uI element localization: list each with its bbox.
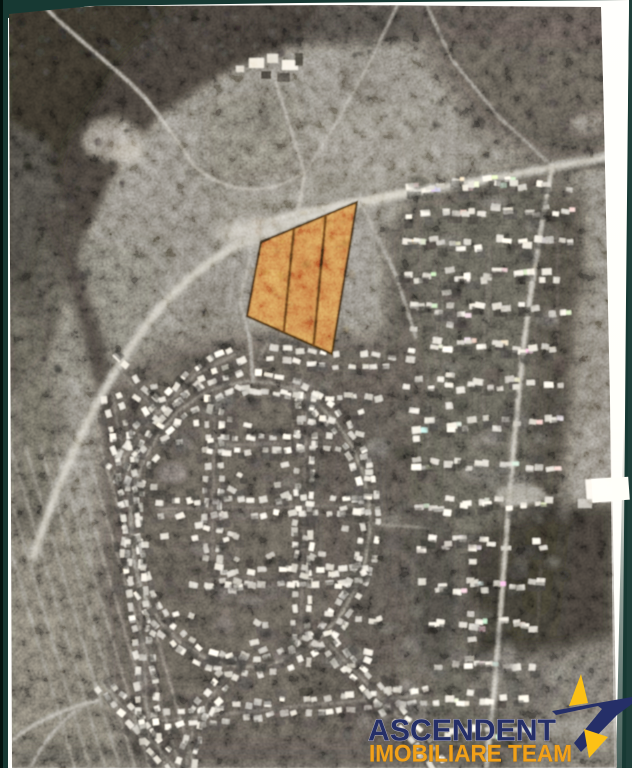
svg-text:IMOBILIARE TEAM: IMOBILIARE TEAM — [369, 741, 572, 768]
